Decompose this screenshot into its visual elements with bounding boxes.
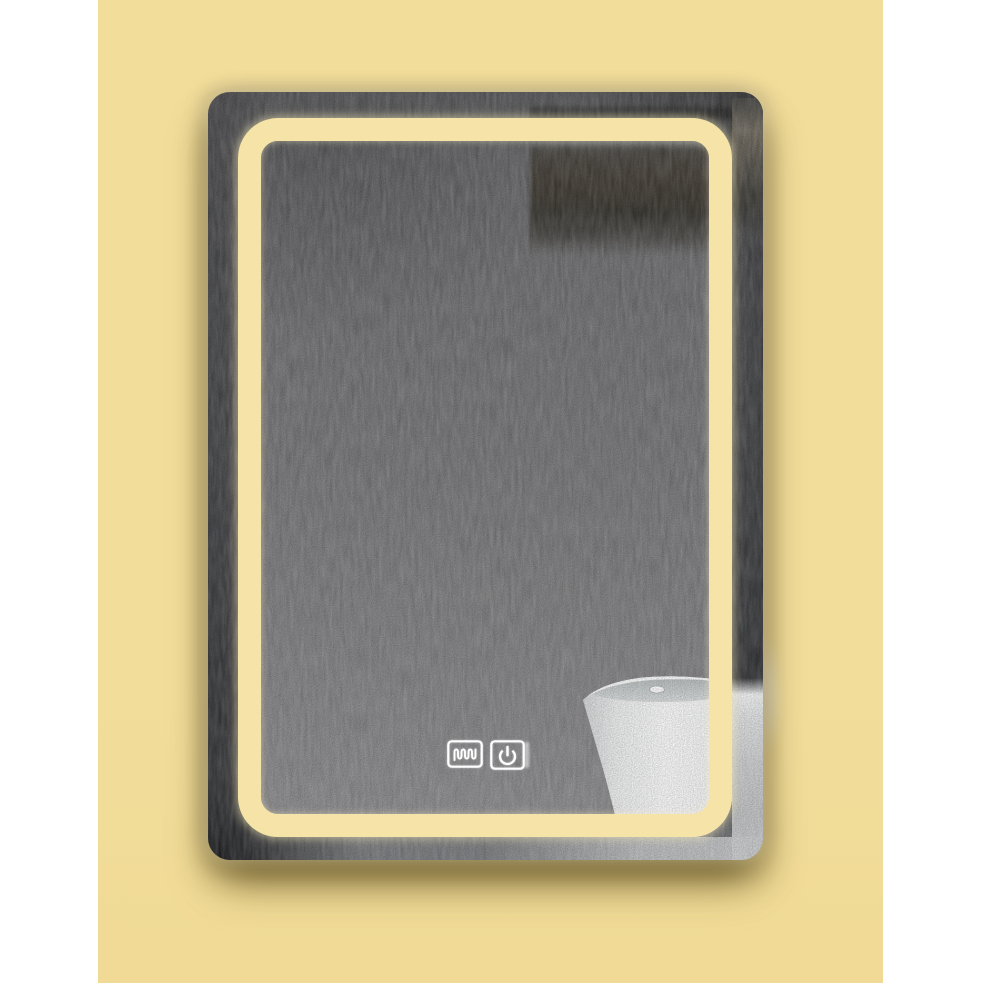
led-strip xyxy=(238,118,732,837)
basin-reflection-on-bevel xyxy=(732,678,763,860)
defogger-button[interactable] xyxy=(447,740,483,768)
basin-reflection-on-bottom-edge xyxy=(488,837,763,860)
power-button[interactable] xyxy=(490,740,525,770)
product-photo xyxy=(0,0,1000,1000)
shelf-reflection-on-bevel xyxy=(732,98,763,248)
power-icon xyxy=(490,740,525,770)
defogger-icon xyxy=(447,740,483,768)
led-mirror xyxy=(208,92,763,860)
